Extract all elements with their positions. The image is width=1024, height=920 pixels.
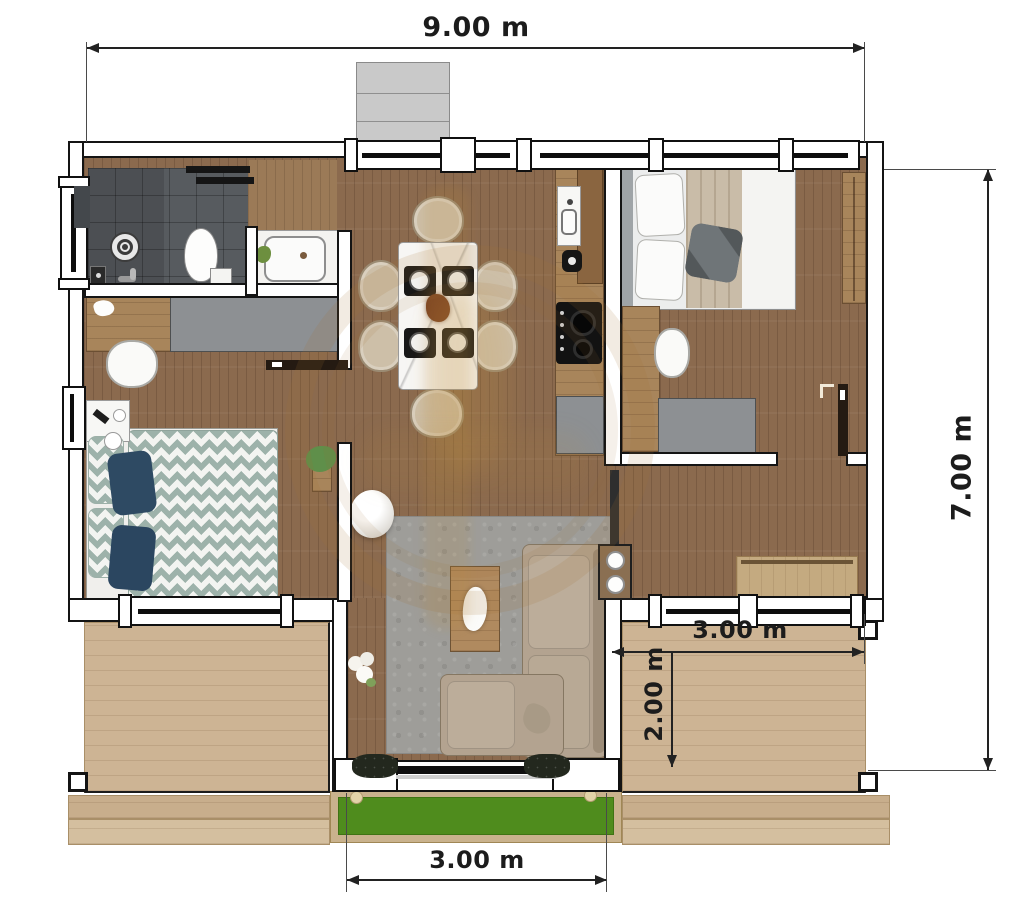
window-jamb (850, 594, 864, 628)
window-bottom-right-glass (666, 609, 854, 614)
window-jamb (778, 138, 794, 172)
wall-bedroom-dining-b (337, 442, 352, 602)
stepping-stone-left (350, 791, 363, 804)
kitchen-lower-cabinet (556, 396, 604, 454)
sofa-seat-cushion (447, 681, 515, 749)
sofa-seat-cushion (528, 555, 590, 649)
bed-right-duvet (740, 170, 794, 308)
window-left-lower (62, 386, 86, 450)
deck-left-step-1 (68, 795, 330, 819)
bathroom-sliding-door-bar-2 (196, 177, 254, 184)
floor-plan: 9.00 m 7.00 m 3.00 m 2.00 m 3.00 m (0, 0, 1024, 920)
window-left-lower-glass (70, 394, 74, 442)
table-sculpture (460, 586, 490, 633)
window-jamb (344, 138, 358, 172)
sofa-corner-seat (440, 674, 564, 756)
bedroom-right-door-bracket (820, 384, 834, 398)
flower-plant (346, 652, 380, 688)
wall-right (866, 141, 884, 622)
side-table-with-plates (598, 544, 632, 600)
arrow-up (983, 169, 993, 181)
ext-right-top (884, 169, 996, 170)
nightstand-cup (113, 409, 126, 422)
flower-leaf (366, 678, 376, 687)
place-setting (442, 328, 474, 358)
arrow-right (853, 43, 865, 53)
console-edge (741, 560, 853, 564)
deck-post-left (68, 772, 88, 792)
cooktop-knob (560, 347, 564, 351)
flower (360, 652, 374, 666)
cooktop-knob (560, 323, 564, 327)
arrow-down (983, 758, 993, 770)
step-line (357, 93, 449, 94)
kitchen-kettle (562, 250, 582, 272)
shower-fixture-2 (130, 268, 136, 280)
deck-right-step-2 (622, 819, 890, 845)
plate (447, 332, 468, 353)
ext-top-right (864, 42, 865, 142)
door-plant-right (524, 754, 570, 778)
bedroom-left-door-leaf (266, 360, 348, 370)
door-handle (840, 390, 845, 400)
bed-right-pillow-1 (634, 173, 685, 237)
shower-drain (110, 232, 140, 262)
pouf-sphere (350, 490, 394, 538)
plate (606, 575, 625, 594)
deck-left-step-2 (68, 819, 330, 845)
wall-kitchen-bedroom (604, 156, 622, 466)
window-top-1-glass (362, 153, 510, 158)
bathroom-floor-box (90, 266, 106, 284)
wall-bathroom-south (84, 283, 352, 298)
sink-basin (561, 209, 577, 235)
bedroom-left-chair (106, 340, 158, 388)
wall-bedroom-right-stub (846, 452, 868, 466)
dining-chair-right-1 (472, 260, 518, 312)
entry-steps-top (356, 62, 450, 148)
place-setting (404, 328, 436, 358)
toilet-cistern (210, 268, 232, 284)
dim-entrance-width: 3.00 m (377, 846, 577, 874)
dim-overall-depth: 7.00 m (947, 403, 978, 533)
drain-center (122, 244, 128, 250)
shower-niche (74, 186, 90, 228)
bed-left-navy-pillow-2 (107, 524, 156, 592)
bedroom-left-wardrobe (170, 296, 340, 352)
bedroom-left-stool (104, 432, 122, 450)
plate (606, 551, 625, 570)
bathroom-sliding-door-bar-1 (186, 166, 250, 173)
bed-right-pillow-2 (634, 239, 685, 301)
dim-terrace-depth: 2.00 m (640, 629, 668, 759)
bedroom-right-bench (658, 398, 756, 454)
step-line (357, 121, 449, 122)
window-jamb (118, 594, 132, 628)
window-jamb (58, 278, 90, 290)
dining-chair-bottom (410, 388, 464, 438)
coffee-table (450, 566, 500, 652)
cooktop-knob (560, 311, 564, 315)
wall-bedroom-right-south (620, 452, 778, 466)
door-plant-left (352, 754, 398, 778)
bedroom-right-chair (654, 328, 690, 378)
wall-bedroom-dining-a (337, 230, 352, 370)
cooktop-knob (560, 335, 564, 339)
plate (409, 332, 430, 353)
kitchen-sink-unit (557, 186, 581, 246)
window-top-3-glass (672, 153, 848, 158)
bedroom-right-desk (622, 306, 660, 452)
cooktop (556, 302, 602, 364)
dim-line-entrance (347, 879, 607, 881)
deck-post-right-bottom (858, 772, 878, 792)
wall-vanity-divider (245, 226, 258, 296)
arrow-left (612, 647, 624, 657)
bed-left-navy-pillow-1 (106, 450, 157, 517)
ext-terrace-right (864, 614, 865, 664)
dim-line-right (987, 169, 989, 771)
arrow-down (667, 755, 677, 767)
arrow-left (87, 43, 99, 53)
bedroom-right-door-leaf (838, 384, 848, 456)
window-jamb (440, 137, 476, 173)
deck-left (84, 622, 330, 793)
plate (409, 270, 430, 291)
window-jamb (516, 138, 532, 172)
bathroom-passage-floor (248, 160, 337, 233)
burner-large (570, 310, 596, 336)
arrow-left (347, 875, 359, 885)
window-jamb (280, 594, 294, 628)
ext-top-left (86, 42, 87, 142)
dining-chair-right-2 (472, 320, 518, 372)
arrow-right (852, 647, 864, 657)
wardrobe-line (853, 177, 855, 301)
ext-right-bottom (868, 770, 996, 771)
lawn (338, 797, 614, 835)
dim-line-top (87, 47, 865, 49)
place-setting (404, 266, 436, 296)
plate (447, 270, 468, 291)
kettle-lid (568, 257, 576, 265)
burner-small (573, 339, 593, 359)
dim-terrace-width: 3.00 m (640, 616, 840, 644)
door-handle (272, 362, 282, 367)
sofa-pillow (519, 701, 555, 737)
window-jamb (648, 138, 664, 172)
place-setting (442, 266, 474, 296)
vanity-sink (264, 236, 326, 282)
arrow-right (595, 875, 607, 885)
dim-overall-width: 9.00 m (376, 12, 576, 43)
nightstand-deco (93, 409, 110, 424)
vanity-faucet (300, 252, 307, 259)
table-centerpiece (426, 294, 450, 322)
bedroom-right-wardrobe (842, 172, 866, 304)
dining-chair-top (412, 196, 464, 244)
sink-faucet (567, 199, 573, 205)
dim-line-terrace-depth (671, 651, 673, 767)
bed-right-gray-pillow (684, 222, 745, 284)
box-dot (96, 273, 101, 278)
deck-right-step-1 (622, 795, 890, 819)
window-bottom-left-glass (138, 609, 280, 614)
